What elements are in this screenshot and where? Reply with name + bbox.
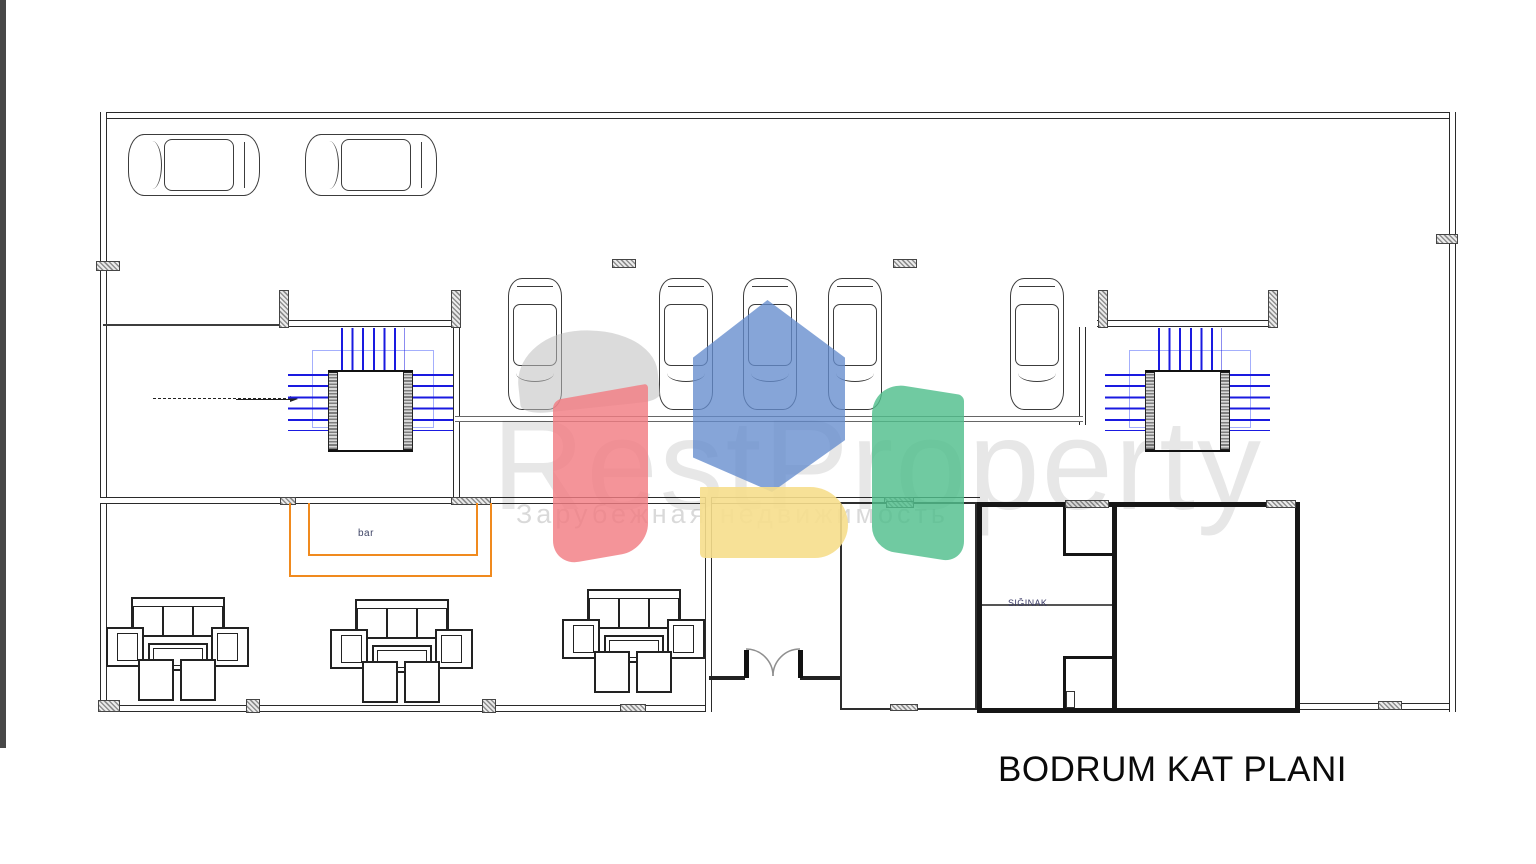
stair-treads-icon [1158,328,1222,372]
logo-green-house-shape [872,381,964,564]
seating-group-icon [330,599,473,705]
logo-yellow-shape [700,487,848,558]
column [279,290,289,328]
stair-top-wall-right [1097,320,1278,327]
stair-top-wall-left [281,320,461,327]
closet-wall [1063,553,1114,556]
wall-opening [1378,701,1402,710]
armchair-icon [435,629,473,669]
entrance-wall-stub [709,676,745,680]
wall-tick [893,259,917,268]
wall-left-stub [103,324,283,326]
column [482,699,496,713]
parking-wall-vertical [453,327,460,499]
chair-icon [636,651,672,693]
armchair-icon [667,619,705,659]
column [98,700,120,712]
chair-icon [180,659,216,701]
elevator-shaft [328,370,413,452]
centerline-solid [236,399,292,401]
car-icon [128,134,260,196]
column [1268,290,1278,328]
seating-group-icon [562,589,705,695]
column [246,699,260,713]
stair-treads-icon [288,374,328,431]
bottom-wall-left [100,705,710,712]
bottom-wall-right [1300,703,1449,710]
wall-opening [1266,500,1296,508]
wall-opening [890,704,918,711]
page-edge-bar [0,0,6,748]
column [451,290,461,328]
bar-counter-inner [308,503,478,556]
seating-group-icon [106,597,249,703]
wall-opening [620,704,646,712]
logo-red-shape [553,384,648,567]
car-icon [1010,278,1064,410]
armchair-icon [211,627,249,667]
floor-plan-page: bar SIĞINAK RestProp [0,0,1536,864]
entrance-door-swing-icon [742,645,804,679]
car-icon [305,134,437,196]
chair-icon [404,661,440,703]
wall-tick [96,261,120,271]
stair-treads-icon [413,374,453,431]
chair-icon [594,651,630,693]
chair-icon [362,661,398,703]
wall-tick [1436,234,1458,244]
chair-icon [138,659,174,701]
stair-treads-icon [341,328,405,372]
shelter-divider-wall [1112,507,1117,708]
page-title: BODRUM KAT PLANI [998,750,1347,790]
closet-wall [1063,656,1114,659]
outer-wall-right [1449,112,1456,712]
shelter-label: SIĞINAK [1008,598,1047,608]
bar-label: bar [358,528,374,539]
outer-wall-top [100,112,1456,119]
closet-door [1066,691,1075,708]
wall-tick [612,259,636,268]
entrance-wall-stub [800,676,840,680]
column [1098,290,1108,328]
